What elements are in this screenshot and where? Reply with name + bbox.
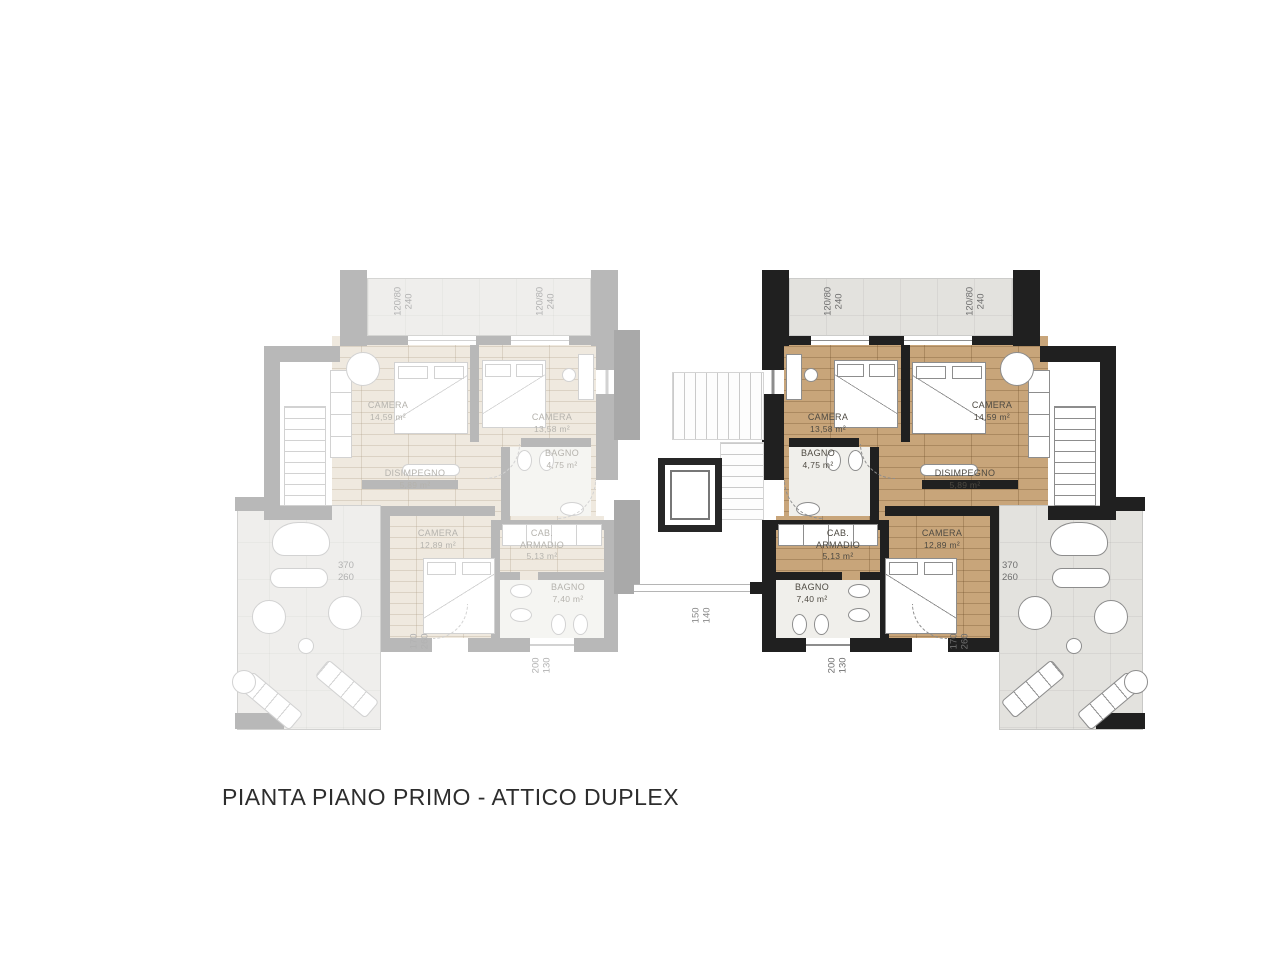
terrace-dimension: 170260 [949,621,972,661]
room-label-camera: CAMERA 14,59 m² [350,400,426,423]
sink-symbol [848,608,870,622]
duplex-stairs-symbol [284,406,326,506]
wall [340,270,367,346]
window-dimension: 120/80240 [393,283,416,319]
room-label-bagno: BAGNO 7,40 m² [536,582,600,605]
sink-symbol [510,584,532,598]
corridor-window [630,584,764,592]
wall [264,506,332,520]
window-dimension: 120/80240 [823,283,846,319]
elevator-car [670,470,710,520]
side-table-symbol [298,638,314,654]
sink-symbol [510,608,532,622]
chair-symbol [804,368,818,382]
bed-symbol [394,362,468,434]
window-dimension: 120/80240 [965,283,988,319]
outdoor-chair-symbol [1018,596,1052,630]
closet-symbol [330,370,352,458]
room-label-camera: CAMERA 14,59 m² [954,400,1030,423]
unit-left-inactive: CAMERA 13,58 m² CAMERA 14,59 m² BAGNO 4,… [228,266,618,736]
side-table-symbol [1124,670,1148,694]
plan-title: PIANTA PIANO PRIMO - ATTICO DUPLEX [222,784,679,811]
wall [381,506,495,516]
common-stairs-upper-flight [672,372,764,440]
room-label-bagno: BAGNO 4,75 m² [786,448,850,471]
wall [860,572,880,580]
outdoor-chair-symbol [1094,600,1128,634]
wall [789,438,859,447]
room-label-camera: CAMERA 13,58 m² [514,412,590,435]
outdoor-sofa-symbol [1050,522,1108,556]
outdoor-chair-symbol [328,596,362,630]
room-label-bagno: BAGNO 4,75 m² [530,448,594,471]
closet-symbol [1028,370,1050,458]
terrace-dimension: 170260 [409,621,432,661]
side-table-symbol [232,670,256,694]
wall [1048,506,1116,520]
wall [235,497,273,511]
outdoor-chair-symbol [252,600,286,634]
wall [381,506,390,652]
wall [901,345,910,442]
room-label-camera: CAMERA 12,89 m² [400,528,476,551]
toilet-symbol [814,614,829,635]
window [408,336,476,345]
wall [1107,497,1145,511]
armchair-symbol [1000,352,1034,386]
side-table-symbol [1066,638,1082,654]
room-label-camera: CAMERA 13,58 m² [790,412,866,435]
wall [500,572,520,580]
room-label-bagno: BAGNO 7,40 m² [780,582,844,605]
wall [1013,270,1040,346]
window [511,336,569,345]
common-stairs-lower-flight [720,442,764,520]
wall [614,330,640,440]
terrace-dimension: 370260 [338,560,378,584]
outdoor-sofa-symbol [272,522,330,556]
window-dimension: 120/80240 [535,283,558,319]
terrace-dimension: 370260 [1002,560,1042,584]
armchair-symbol [346,352,380,386]
window [811,336,869,345]
wall [990,506,999,652]
toilet-symbol [551,614,566,635]
chair-symbol [562,368,576,382]
outdoor-bench-symbol [270,568,328,588]
wall [470,345,479,442]
sink-symbol [848,584,870,598]
room-label-cab-armadio: CAB. ARMADIO 5,13 m² [510,528,574,562]
wall [614,582,634,594]
room-label-camera: CAMERA 12,89 m² [904,528,980,551]
window-dimension: 200130 [827,645,850,685]
wall [750,582,766,594]
outdoor-bench-symbol [1052,568,1110,588]
bidet-symbol [792,614,807,635]
window [904,336,972,345]
wall [614,500,640,584]
central-core: 150140 [600,330,780,660]
floor-plan-canvas: CAMERA 13,58 m² CAMERA 14,59 m² BAGNO 4,… [0,0,1280,968]
bed-symbol [912,362,986,434]
room-label-disimpegno: DISIMPEGNO 5,89 m² [370,468,460,491]
terrace-door-opening [912,638,948,652]
room-label-cab-armadio: CAB. ARMADIO 5,13 m² [806,528,870,562]
wall [885,506,999,516]
terrace-door-opening [432,638,468,652]
duplex-stairs-symbol [1054,406,1096,506]
desk-symbol [578,354,594,400]
wall [1040,346,1116,362]
landing-dimension: 150140 [691,597,714,633]
bidet-symbol [573,614,588,635]
wall [264,346,340,362]
room-label-disimpegno: DISIMPEGNO 5,89 m² [920,468,1010,491]
elevator-symbol [658,458,722,532]
window-dimension: 200130 [531,645,554,685]
desk-symbol [786,354,802,400]
unit-right-active: CAMERA 13,58 m² CAMERA 14,59 m² BAGNO 4,… [762,266,1152,736]
wall [521,438,591,447]
